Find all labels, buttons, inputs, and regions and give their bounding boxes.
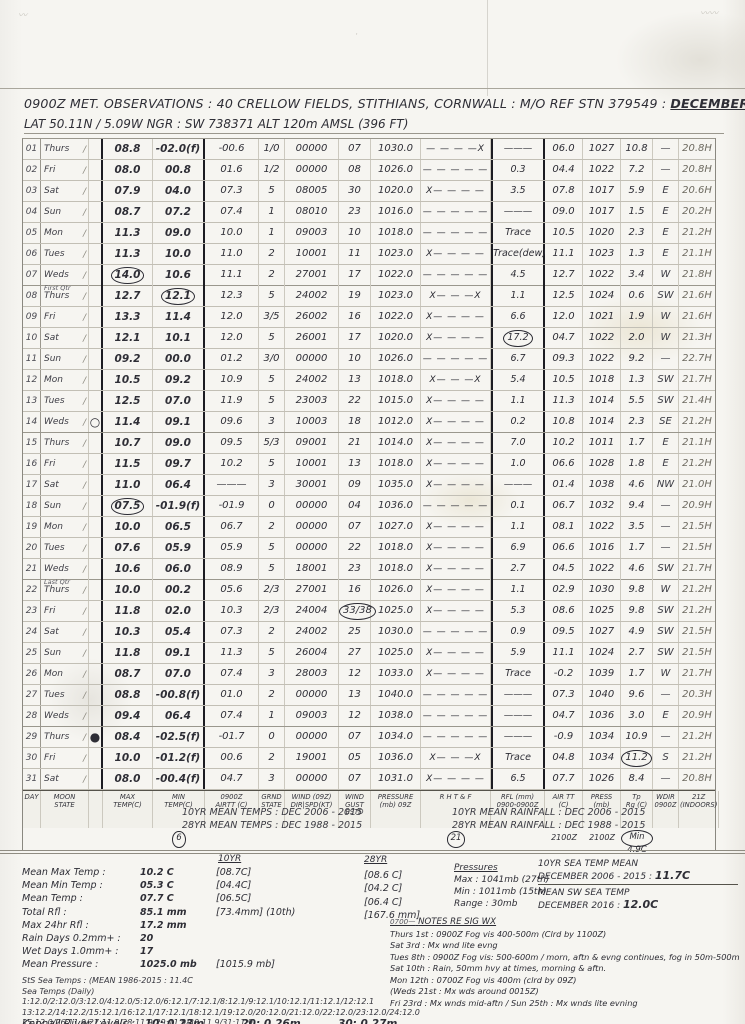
- cell-tr: 10.9: [621, 727, 653, 747]
- cell-p21: 1018: [583, 370, 621, 390]
- cell-gu: 16: [339, 580, 371, 600]
- cell-rh: X— — — —: [421, 181, 491, 201]
- cell-gu: 21: [339, 433, 371, 453]
- cell-wd: —: [653, 139, 679, 159]
- cell-tr: 9.4: [621, 496, 653, 516]
- cell-mn: 07.0: [153, 391, 205, 411]
- cell-tr: 4.9: [621, 622, 653, 642]
- cell-d: 03: [23, 181, 41, 201]
- cell-g: 3: [259, 769, 285, 789]
- cell-mx: 11.0: [103, 475, 153, 495]
- table-row: 24Sat10.305.407.3224002251030.0— — — — —…: [23, 622, 715, 643]
- cell-g: 2: [259, 748, 285, 768]
- stat-b10: [216, 919, 326, 932]
- cell-wd: E: [653, 706, 679, 726]
- cell-ind: 21.2H: [679, 454, 715, 474]
- cell-w: 10001: [285, 244, 339, 264]
- col-28yr-header: 28YR: [364, 854, 444, 867]
- cell-wk: Thurs: [41, 727, 89, 747]
- cell-p21: 1011: [583, 433, 621, 453]
- stat-28yr-value: [08.6 C]: [364, 869, 444, 882]
- cell-ind: 22.7H: [679, 349, 715, 369]
- cell-tr: 2.3: [621, 223, 653, 243]
- cell-wd: E: [653, 454, 679, 474]
- cell-moon: [89, 202, 103, 222]
- cell-moon: [89, 286, 103, 306]
- cell-d: 18: [23, 496, 41, 516]
- cell-rf: 0.2: [491, 412, 545, 432]
- cell-a9: 10.0: [205, 223, 259, 243]
- cell-moon: [89, 685, 103, 705]
- cell-wd: SE: [653, 412, 679, 432]
- cell-w: 09003: [285, 706, 339, 726]
- cell-g: 1/2: [259, 160, 285, 180]
- cell-mn: -02.0(f): [153, 139, 205, 159]
- cell-p21: 1022: [583, 517, 621, 537]
- stat-label: Total Rfl :: [22, 906, 140, 919]
- page-subtitle: LAT 50.11N / 5.09W NGR : SW 738371 ALT 1…: [24, 117, 724, 134]
- stat-label: Mean Temp :: [22, 892, 140, 905]
- cell-wd: SW: [653, 286, 679, 306]
- cell-gu: 27: [339, 643, 371, 663]
- cell-gu: 10: [339, 223, 371, 243]
- cell-a9: 11.3: [205, 643, 259, 663]
- cell-g: 2: [259, 244, 285, 264]
- cell-ind: 21.1H: [679, 433, 715, 453]
- cell-a21: 12.5: [545, 286, 583, 306]
- cell-tr: 2.0: [621, 328, 653, 348]
- cell-p21: 1024: [583, 286, 621, 306]
- cell-gu: 13: [339, 454, 371, 474]
- cell-wk: Thurs: [41, 580, 89, 600]
- cell-wd: E: [653, 433, 679, 453]
- cell-rh: — — — — —: [421, 349, 491, 369]
- cell-g: 5: [259, 538, 285, 558]
- cell-w: 19001: [285, 748, 339, 768]
- cell-w: 26002: [285, 307, 339, 327]
- cell-w: 24004: [285, 601, 339, 621]
- cell-p21: 1021: [583, 307, 621, 327]
- circled-value: 07.5: [111, 498, 145, 515]
- cell-g: 5: [259, 328, 285, 348]
- paper-crease: [487, 0, 488, 96]
- cell-a9: 05.6: [205, 580, 259, 600]
- cell-rh: — — — — —: [421, 202, 491, 222]
- cell-ind: 21.5H: [679, 517, 715, 537]
- table-row: 28Weds09.406.407.4109003121038.0— — — — …: [23, 706, 715, 727]
- cell-gu: 13: [339, 685, 371, 705]
- cell-mn: 09.2: [153, 370, 205, 390]
- column-sublabel-rf: [491, 828, 545, 860]
- cell-wd: W: [653, 328, 679, 348]
- cell-rh: X— — — —: [421, 328, 491, 348]
- cell-w: 23003: [285, 391, 339, 411]
- notes-header: 0700— NOTES RE SIG WX: [390, 917, 496, 927]
- cell-mx: 10.3: [103, 622, 153, 642]
- cell-mx: 08.0: [103, 769, 153, 789]
- cell-rh: — — — — —: [421, 685, 491, 705]
- cell-a21: 04.4: [545, 160, 583, 180]
- cell-ind: 21.7H: [679, 370, 715, 390]
- circled-annotation: 6: [172, 831, 185, 848]
- table-row: 10Sat12.110.112.0526001171020.0X— — — —1…: [23, 328, 715, 349]
- sea-2016-value: 12.0C: [623, 898, 658, 911]
- cell-mn: 06.4: [153, 475, 205, 495]
- cell-p21: 1038: [583, 475, 621, 495]
- kennall-label: Kennall River Levels :: [22, 1018, 135, 1024]
- cell-mn: 09.7: [153, 454, 205, 474]
- cell-rh: X— — — —: [421, 412, 491, 432]
- cell-rh: X— — — —: [421, 769, 491, 789]
- cell-gu: 13: [339, 370, 371, 390]
- cell-gu: 30: [339, 181, 371, 201]
- cell-tr: 9.2: [621, 349, 653, 369]
- cell-gu: 11: [339, 244, 371, 264]
- cell-ind: 21.2H: [679, 727, 715, 747]
- stat-v: 07.7 C: [140, 892, 216, 905]
- cell-wk: Sat: [41, 181, 89, 201]
- cell-mx: 12.5: [103, 391, 153, 411]
- cell-rf: 5.9: [491, 643, 545, 663]
- cell-p21: 1023: [583, 244, 621, 264]
- stat-b10: [1015.9 mb]: [216, 958, 326, 971]
- cell-mn: -00.4(f): [153, 769, 205, 789]
- cell-w: 24002: [285, 622, 339, 642]
- cell-tr: 2.7: [621, 643, 653, 663]
- sea-10yr: 10YR SEA TEMP MEAN DECEMBER 2006 - 2015 …: [538, 858, 738, 885]
- cell-a21: 09.5: [545, 622, 583, 642]
- cell-rh: X— — — —: [421, 475, 491, 495]
- cell-d: 17: [23, 475, 41, 495]
- cell-gu: 33/38: [339, 601, 371, 621]
- cell-mx: 10.7: [103, 433, 153, 453]
- cell-wd: —: [653, 496, 679, 516]
- cell-mn: 11.4: [153, 307, 205, 327]
- cell-d: 08: [23, 286, 41, 306]
- column-sublabel-moon: [89, 828, 103, 860]
- cell-w: 00000: [285, 685, 339, 705]
- cell-a9: 07.3: [205, 181, 259, 201]
- cell-wd: SW: [653, 601, 679, 621]
- cell-moon: [89, 328, 103, 348]
- cell-mx: 09.2: [103, 349, 153, 369]
- cell-mn: -01.9(f): [153, 496, 205, 516]
- stat-v: 17.2 mm: [140, 919, 216, 932]
- cell-mn: 12.1: [153, 286, 205, 306]
- cell-rh: — — — — —: [421, 622, 491, 642]
- cell-mx: 09.4: [103, 706, 153, 726]
- cell-wd: SW: [653, 391, 679, 411]
- cell-wk: Fri: [41, 601, 89, 621]
- cell-a21: 02.9: [545, 580, 583, 600]
- cell-p9: 1015.0: [371, 391, 421, 411]
- cell-p21: 1016: [583, 538, 621, 558]
- cell-g: 5: [259, 391, 285, 411]
- cell-p21: 1030: [583, 580, 621, 600]
- cell-rh: X— — — —: [421, 643, 491, 663]
- cell-rh: — — — — —: [421, 727, 491, 747]
- cell-mx: 11.8: [103, 643, 153, 663]
- cell-g: 3/0: [259, 349, 285, 369]
- cell-rf: Trace: [491, 223, 545, 243]
- cell-ind: 21.5H: [679, 538, 715, 558]
- stat-label: Wet Days 1.0mm+ :: [22, 945, 140, 958]
- cell-moon: [89, 244, 103, 264]
- table-row: 31Sat08.0-00.4(f)04.7300000071031.0X— — …: [23, 769, 715, 790]
- cell-mx: 10.0: [103, 580, 153, 600]
- mean-rainfall-ref: 10YR MEAN RAINFALL : DEC 2006 - 2015 28Y…: [452, 806, 645, 832]
- cell-d: 22: [23, 580, 41, 600]
- cell-a9: 01.2: [205, 349, 259, 369]
- column-sublabel-wk: [41, 828, 89, 860]
- cell-rf: 5.3: [491, 601, 545, 621]
- cell-wd: E: [653, 244, 679, 264]
- table-row: 27Tues08.8-00.8(f)01.0200000131040.0— — …: [23, 685, 715, 706]
- cell-g: 3/5: [259, 307, 285, 327]
- cell-a21: 07.7: [545, 769, 583, 789]
- cell-wd: W: [653, 307, 679, 327]
- cell-wk: Fri: [41, 307, 89, 327]
- cell-rf: 7.0: [491, 433, 545, 453]
- cell-tr: 0.6: [621, 286, 653, 306]
- cell-wk: Sun: [41, 202, 89, 222]
- col-10yr-header: 10YR: [218, 854, 241, 864]
- cell-mn: 09.1: [153, 412, 205, 432]
- cell-a21: 11.1: [545, 643, 583, 663]
- cell-ind: 20.6H: [679, 181, 715, 201]
- scanned-log-sheet: 〰 〰〰 · 0900Z MET. OBSERVATIONS : 40 CREL…: [0, 0, 745, 1024]
- cell-gu: 07: [339, 769, 371, 789]
- cell-ind: 20.3H: [679, 685, 715, 705]
- cell-a21: 08.6: [545, 601, 583, 621]
- cell-rh: X— — — —: [421, 391, 491, 411]
- cell-ind: 21.2H: [679, 580, 715, 600]
- cell-w: 09003: [285, 223, 339, 243]
- cell-w: 28003: [285, 664, 339, 684]
- cell-tr: 1.3: [621, 244, 653, 264]
- cell-tr: 9.6: [621, 685, 653, 705]
- cell-w: 00000: [285, 349, 339, 369]
- cell-mn: 02.0: [153, 601, 205, 621]
- cell-gu: 17: [339, 328, 371, 348]
- cell-d: 12: [23, 370, 41, 390]
- cell-mx: 11.3: [103, 223, 153, 243]
- cell-p21: 1014: [583, 391, 621, 411]
- cell-g: 5: [259, 454, 285, 474]
- cell-mn: 05.9: [153, 538, 205, 558]
- table-row: 23Fri11.802.010.32/32400433/381025.0X— —…: [23, 601, 715, 622]
- cell-mn: 05.4: [153, 622, 205, 642]
- cell-tr: 9.8: [621, 601, 653, 621]
- cell-g: 2/3: [259, 601, 285, 621]
- cell-wd: —: [653, 769, 679, 789]
- sea-10yr-value: 11.7C: [655, 869, 690, 882]
- column-sublabel-p21: 2100Z: [583, 828, 621, 860]
- cell-rf: 6.5: [491, 769, 545, 789]
- cell-gu: 16: [339, 307, 371, 327]
- cell-p9: 1023.0: [371, 286, 421, 306]
- cell-wd: W: [653, 664, 679, 684]
- cell-p21: 1039: [583, 664, 621, 684]
- note-line: Sat 10th : Rain, 50mm hvy at times, morn…: [390, 963, 745, 975]
- table-row: 06Tues11.310.011.0210001111023.0X— — — —…: [23, 244, 715, 265]
- table-row: 07WedsFirst Qtr14.010.611.1227001171022.…: [23, 265, 715, 286]
- cell-mx: 12.7: [103, 286, 153, 306]
- cell-p9: 1025.0: [371, 643, 421, 663]
- note-line: Sat 3rd : Mx wnd lite evng: [390, 940, 745, 952]
- cell-p9: 1033.0: [371, 664, 421, 684]
- cell-p21: 1026: [583, 769, 621, 789]
- cell-gu: 07: [339, 517, 371, 537]
- cell-mx: 07.9: [103, 181, 153, 201]
- cell-rf: Trace: [491, 664, 545, 684]
- cell-gu: 25: [339, 622, 371, 642]
- cell-gu: 18: [339, 412, 371, 432]
- cell-mx: 10.0: [103, 748, 153, 768]
- cell-a21: 08.1: [545, 517, 583, 537]
- cell-tr: 1.8: [621, 454, 653, 474]
- cell-a21: 11.1: [545, 244, 583, 264]
- cell-p9: 1020.0: [371, 328, 421, 348]
- cell-tr: 3.0: [621, 706, 653, 726]
- cell-p9: 1038.0: [371, 706, 421, 726]
- cell-gu: 23: [339, 202, 371, 222]
- cell-a9: 06.7: [205, 517, 259, 537]
- cell-gu: 12: [339, 664, 371, 684]
- cell-rh: — — — — —: [421, 223, 491, 243]
- cell-g: 5: [259, 181, 285, 201]
- cell-d: 30: [23, 748, 41, 768]
- cell-rh: X— — — —: [421, 580, 491, 600]
- cell-g: 2/3: [259, 580, 285, 600]
- cell-mn: 00.0: [153, 349, 205, 369]
- cell-rf: 3.5: [491, 181, 545, 201]
- cell-ind: 20.8H: [679, 139, 715, 159]
- table-row: 18Sun07.5-01.9(f)-01.9000000041036.0— — …: [23, 496, 715, 517]
- notes-title: NOTES RE SIG WX: [418, 917, 496, 927]
- cell-a9: 05.9: [205, 538, 259, 558]
- cell-mx: 11.3: [103, 244, 153, 264]
- cell-tr: 3.5: [621, 517, 653, 537]
- column-sublabel-mn: 6: [153, 828, 205, 860]
- cell-mx: 08.0: [103, 160, 153, 180]
- kennall-entry-20: 20: 0.26m: [241, 1018, 300, 1024]
- cell-d: 28: [23, 706, 41, 726]
- cell-w: 00000: [285, 517, 339, 537]
- cell-p9: 1034.0: [371, 727, 421, 747]
- cell-moon: [89, 349, 103, 369]
- table-row: 03Sat07.904.007.3508005301020.0X— — — —3…: [23, 181, 715, 202]
- cell-a21: 10.5: [545, 223, 583, 243]
- stat-v: 20: [140, 932, 216, 945]
- cell-wk: Mon: [41, 517, 89, 537]
- cell-p9: 1018.0: [371, 370, 421, 390]
- title-period: DECEMBER 2016: [670, 96, 745, 111]
- cell-wd: S: [653, 748, 679, 768]
- stat-line: Rain Days 0.2mm+ :20: [22, 932, 382, 945]
- stat-v: 17: [140, 945, 216, 958]
- scan-artifact: 〰: [18, 8, 27, 21]
- cell-wk: Thurs: [41, 286, 89, 306]
- cell-moon: [89, 433, 103, 453]
- cell-rh: X— — —X: [421, 370, 491, 390]
- stat-b10: [73.4mm] (10th): [216, 906, 326, 919]
- cell-mn: 07.2: [153, 202, 205, 222]
- stat-line: Total Rfl :85.1 mm[73.4mm] (10th): [22, 906, 382, 919]
- cell-rh: — — — — —: [421, 160, 491, 180]
- sea-2016-period: DECEMBER 2016 :: [538, 901, 620, 911]
- cell-tr: 4.6: [621, 475, 653, 495]
- cell-p21: 1034: [583, 727, 621, 747]
- table-row: 29Thurs●08.4-02.5(f)-01.7000000071034.0—…: [23, 727, 715, 748]
- cell-d: 25: [23, 643, 41, 663]
- cell-p21: 1022: [583, 160, 621, 180]
- cell-rh: X— — — —: [421, 454, 491, 474]
- cell-moon: [89, 391, 103, 411]
- cell-p9: 1012.0: [371, 412, 421, 432]
- cell-ind: 20.8H: [679, 160, 715, 180]
- cell-w: 00000: [285, 769, 339, 789]
- cell-a21: 06.7: [545, 496, 583, 516]
- cell-wk: Weds: [41, 706, 89, 726]
- cell-wd: E: [653, 202, 679, 222]
- stat-b10: [216, 932, 326, 945]
- cell-moon: [89, 496, 103, 516]
- column-sublabel-w: [285, 828, 339, 860]
- cell-tr: 7.2: [621, 160, 653, 180]
- cell-p9: 1016.0: [371, 202, 421, 222]
- cell-a21: -0.2: [545, 664, 583, 684]
- cell-moon: [89, 139, 103, 159]
- cell-gu: 04: [339, 496, 371, 516]
- cell-ind: 21.2H: [679, 748, 715, 768]
- cell-d: 02: [23, 160, 41, 180]
- cell-p9: 1031.0: [371, 769, 421, 789]
- cell-p9: 1026.0: [371, 349, 421, 369]
- cell-rf: ———: [491, 202, 545, 222]
- daily-sea-temps: StS Sea Temps : (MEAN 1986-2015 : 11.4CS…: [22, 976, 392, 1024]
- cell-p9: 1020.0: [371, 181, 421, 201]
- stat-28yr-value: [06.4 C]: [364, 896, 444, 909]
- cell-ind: 21.2H: [679, 601, 715, 621]
- sea-10yr-label: 10YR SEA TEMP MEAN: [538, 859, 638, 869]
- cell-wd: E: [653, 181, 679, 201]
- cell-rf: 6.9: [491, 538, 545, 558]
- page-title: 0900Z MET. OBSERVATIONS : 40 CRELLOW FIE…: [24, 96, 734, 111]
- cell-mn: 04.0: [153, 181, 205, 201]
- cell-moon: [89, 223, 103, 243]
- column-label-mx: MAX TEMP(C): [103, 791, 153, 828]
- cell-mx: 11.4: [103, 412, 153, 432]
- cell-d: 19: [23, 517, 41, 537]
- stat-label: Mean Min Temp :: [22, 879, 140, 892]
- cell-rf: ———: [491, 727, 545, 747]
- cell-rf: ———: [491, 139, 545, 159]
- stat-28yr-value: [04.2 C]: [364, 882, 444, 895]
- cell-a21: 10.8: [545, 412, 583, 432]
- cell-p9: 1018.0: [371, 538, 421, 558]
- cell-rh: X— — — —: [421, 433, 491, 453]
- cell-a9: -01.9: [205, 496, 259, 516]
- cell-mn: 09.1: [153, 643, 205, 663]
- cell-mx: 10.0: [103, 517, 153, 537]
- cell-g: 3: [259, 412, 285, 432]
- table-row: 12Mon10.509.210.9524002131018.0X— — —X5.…: [23, 370, 715, 391]
- cell-wk: Sat: [41, 769, 89, 789]
- cell-moon: [89, 475, 103, 495]
- cell-a21: 01.4: [545, 475, 583, 495]
- cell-rf: 0.9: [491, 622, 545, 642]
